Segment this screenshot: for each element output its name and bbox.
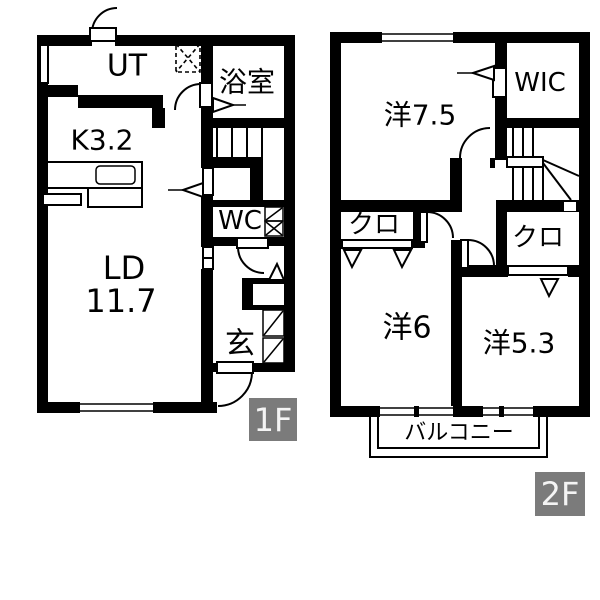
door-leaf bbox=[237, 238, 268, 248]
pipe-space-icon bbox=[265, 207, 283, 236]
wall bbox=[48, 85, 78, 97]
door-leaf bbox=[203, 168, 213, 195]
wall bbox=[37, 35, 48, 413]
door-arc bbox=[460, 128, 490, 158]
storage-slash bbox=[264, 339, 283, 362]
door-arc bbox=[427, 212, 453, 238]
door-leaf bbox=[200, 83, 212, 107]
fold-door-triangle-icon bbox=[394, 250, 411, 267]
wall bbox=[495, 43, 507, 68]
wall bbox=[496, 212, 507, 265]
closet-left-doors bbox=[342, 240, 412, 267]
wall bbox=[201, 107, 213, 118]
room-label-kitchen: K3.2 bbox=[71, 124, 134, 157]
window-mullion bbox=[414, 406, 419, 417]
kitchen-counter bbox=[43, 162, 142, 207]
window-triangle-icon bbox=[269, 264, 284, 280]
floor2-badge-label: 2F bbox=[541, 475, 580, 513]
entrance-storage bbox=[263, 310, 284, 363]
room-label-bath: 浴室 bbox=[219, 66, 275, 99]
door-arc bbox=[468, 240, 494, 266]
wall bbox=[201, 269, 213, 402]
room-label-west53: 洋5.3 bbox=[483, 327, 556, 360]
ld-lower-door bbox=[203, 247, 213, 269]
wic-door bbox=[457, 66, 506, 97]
wall bbox=[201, 46, 213, 83]
closet-right-doors bbox=[508, 266, 568, 296]
wall bbox=[213, 237, 238, 246]
wall bbox=[495, 128, 507, 160]
room-label-wic: WIC bbox=[514, 68, 566, 98]
door-arc bbox=[218, 372, 252, 406]
wall bbox=[201, 195, 213, 247]
room-label-ut: UT bbox=[107, 49, 148, 84]
window bbox=[483, 406, 533, 417]
stairs-2f bbox=[507, 128, 579, 200]
door-top bbox=[90, 8, 117, 46]
room-label-wc: WC bbox=[218, 206, 262, 236]
wc-door bbox=[237, 238, 268, 273]
door-leaf bbox=[420, 212, 427, 242]
window bbox=[380, 406, 453, 417]
room-label-west6: 洋6 bbox=[382, 311, 431, 346]
room-label-balcony: バルコニー bbox=[404, 421, 514, 446]
wall bbox=[495, 118, 507, 128]
wall bbox=[213, 157, 250, 168]
floor1-plan: UT 浴室 K3.2 WC LD 11.7 玄 1F bbox=[37, 8, 297, 441]
stair-winder-tread bbox=[543, 160, 579, 176]
fold-door-triangle-icon bbox=[344, 250, 361, 267]
door-leaf bbox=[461, 240, 468, 268]
wall bbox=[201, 128, 213, 168]
door-arc bbox=[175, 84, 201, 110]
room-label-west75: 洋7.5 bbox=[384, 99, 457, 132]
floor1-badge-label: 1F bbox=[254, 401, 293, 439]
slash bbox=[266, 208, 282, 220]
room-label-closet-right: クロ bbox=[512, 223, 564, 253]
wall bbox=[201, 118, 295, 128]
wall bbox=[115, 35, 295, 46]
window-mullion bbox=[499, 406, 504, 417]
wall bbox=[568, 265, 579, 277]
floor2-plan: 洋7.5 WIC クロ クロ 洋6 洋5.3 バルコニー 2F bbox=[330, 32, 590, 516]
washer-pan-icon bbox=[176, 44, 200, 72]
window bbox=[80, 402, 153, 413]
entrance-door bbox=[217, 362, 253, 406]
closet-track bbox=[508, 266, 568, 275]
closet-track bbox=[342, 240, 412, 248]
floor-plan-canvas: UT 浴室 K3.2 WC LD 11.7 玄 1F bbox=[0, 0, 600, 600]
west6-door bbox=[420, 212, 453, 242]
wall bbox=[284, 35, 295, 372]
door-arc bbox=[238, 247, 264, 273]
hall-cabinet-inner bbox=[253, 284, 284, 305]
wall bbox=[152, 108, 165, 128]
wall bbox=[507, 118, 579, 128]
room-label-closet-left: クロ bbox=[348, 210, 400, 240]
west53-door bbox=[461, 240, 494, 268]
room-size-living: 11.7 bbox=[85, 282, 156, 320]
stair-landing bbox=[507, 157, 543, 167]
door-swing-triangle-icon bbox=[473, 66, 494, 80]
door-leaf bbox=[217, 362, 253, 373]
door-leaf bbox=[203, 258, 213, 269]
door-leaf bbox=[90, 28, 116, 41]
wall bbox=[78, 95, 163, 108]
door-swing-triangle-icon bbox=[183, 183, 203, 197]
counter-shelf bbox=[43, 194, 81, 205]
wall bbox=[330, 32, 341, 417]
wall bbox=[490, 158, 495, 168]
door-swing-triangle-icon bbox=[213, 98, 233, 112]
fold-door-triangle-icon bbox=[541, 279, 558, 296]
stair-winder-tread bbox=[543, 163, 571, 200]
storage-slash bbox=[264, 311, 283, 335]
wall-niche bbox=[564, 202, 576, 211]
stairs-1f bbox=[217, 128, 262, 157]
wall bbox=[250, 157, 263, 200]
ld-hall-door bbox=[168, 168, 213, 197]
floor-plan-svg: UT 浴室 K3.2 WC LD 11.7 玄 1F bbox=[0, 0, 600, 600]
room-label-entrance: 玄 bbox=[225, 327, 255, 362]
door-leaf bbox=[203, 247, 213, 258]
window bbox=[382, 32, 453, 43]
wall bbox=[579, 32, 590, 417]
wall bbox=[495, 97, 507, 118]
window bbox=[40, 45, 48, 83]
wall bbox=[330, 406, 590, 417]
wall bbox=[253, 363, 295, 372]
wall bbox=[330, 32, 590, 43]
counter-lower bbox=[88, 188, 142, 207]
